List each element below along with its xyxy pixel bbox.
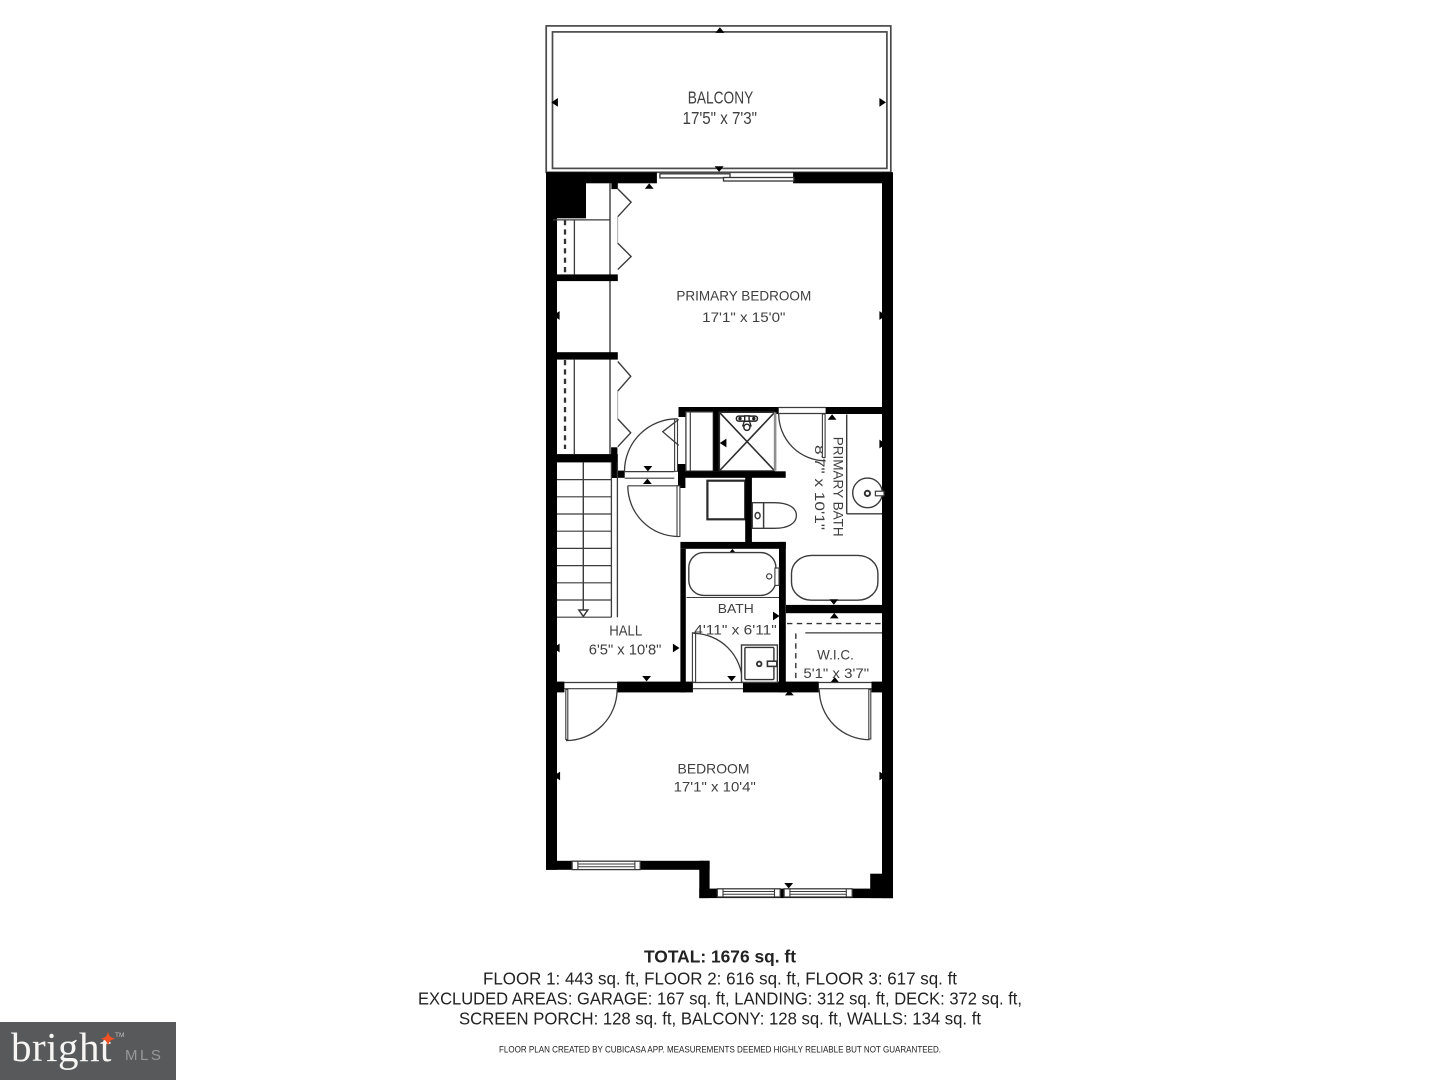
svg-text:17'1" x 10'4": 17'1" x 10'4" (674, 778, 756, 794)
svg-text:bright: bright (11, 1024, 112, 1070)
svg-text:6'5" x 10'8": 6'5" x 10'8" (589, 642, 662, 659)
svg-text:W.I.C.: W.I.C. (817, 647, 854, 663)
svg-text:SCREEN PORCH: 128 sq. ft, BALC: SCREEN PORCH: 128 sq. ft, BALCONY: 128 s… (459, 1009, 981, 1029)
svg-text:BALCONY: BALCONY (688, 88, 754, 108)
svg-text:5'1" x 3'7": 5'1" x 3'7" (803, 665, 869, 681)
svg-text:FLOOR 1: 443 sq. ft, FLOOR 2:: FLOOR 1: 443 sq. ft, FLOOR 2: 616 sq. ft… (483, 969, 957, 989)
svg-text:TM: TM (115, 1032, 124, 1039)
svg-text:BATH: BATH (718, 601, 754, 616)
svg-text:PRIMARY BATH: PRIMARY BATH (831, 437, 847, 537)
svg-text:MLS: MLS (125, 1047, 163, 1064)
svg-text:PRIMARY BEDROOM: PRIMARY BEDROOM (676, 288, 811, 304)
svg-text:FLOOR PLAN CREATED BY CUBICASA: FLOOR PLAN CREATED BY CUBICASA APP. MEAS… (499, 1045, 941, 1055)
svg-text:17'1" x 15'0": 17'1" x 15'0" (702, 309, 785, 325)
svg-text:BEDROOM: BEDROOM (678, 760, 750, 776)
svg-text:HALL: HALL (609, 622, 642, 639)
svg-text:17'5" x 7'3": 17'5" x 7'3" (683, 108, 758, 128)
svg-text:TOTAL: 1676 sq. ft: TOTAL: 1676 sq. ft (644, 947, 796, 967)
svg-text:EXCLUDED AREAS: GARAGE: 167 sq: EXCLUDED AREAS: GARAGE: 167 sq. ft, LAND… (418, 989, 1022, 1009)
